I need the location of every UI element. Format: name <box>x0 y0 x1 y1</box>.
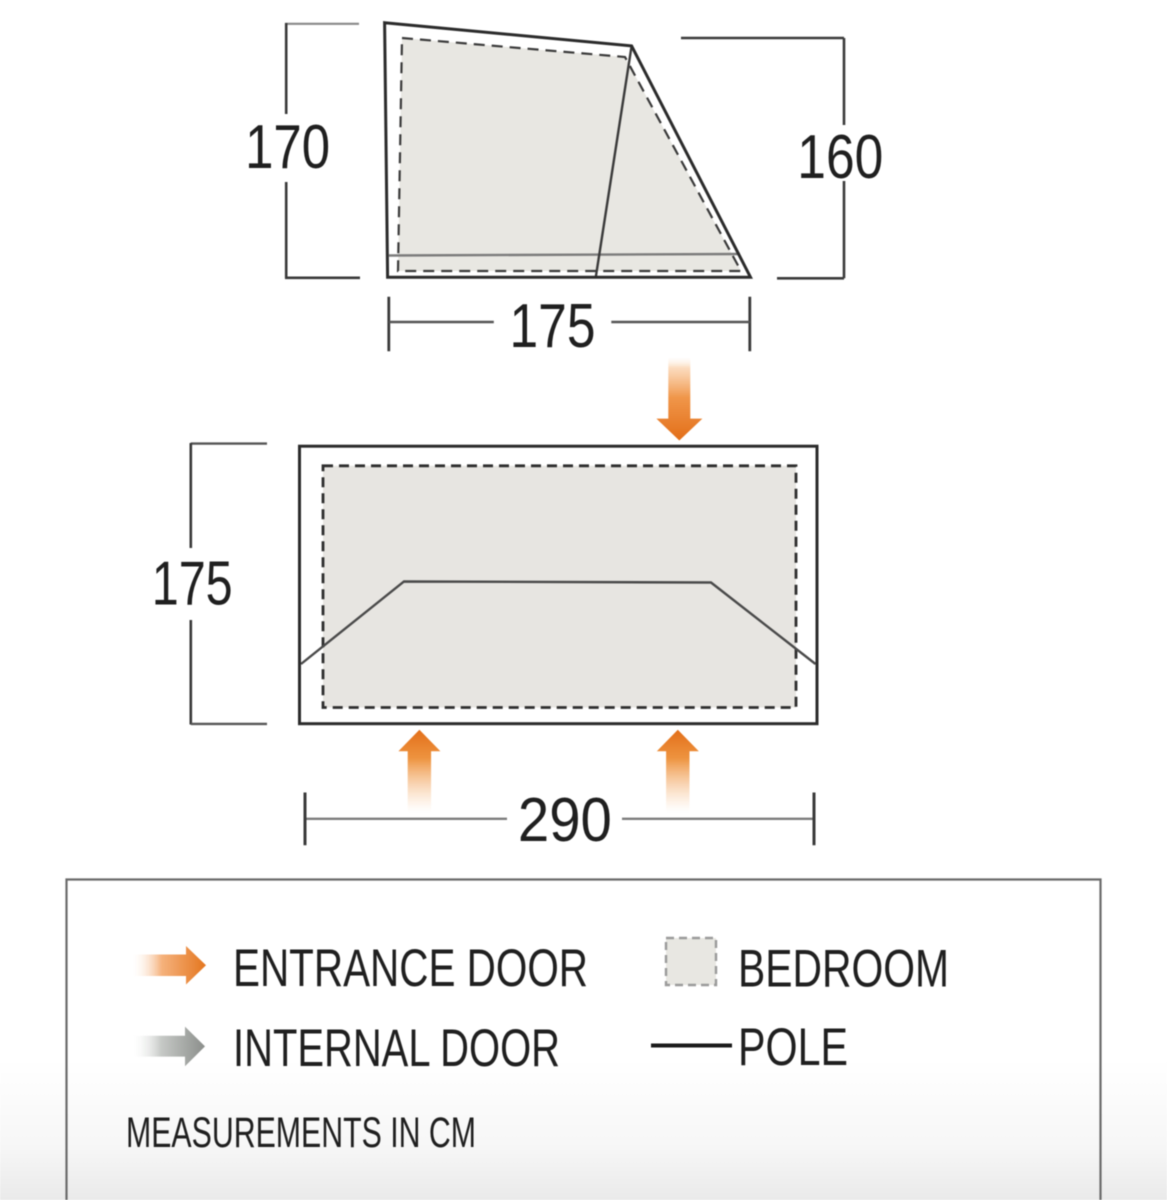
svg-text:MEASUREMENTS IN CM: MEASUREMENTS IN CM <box>126 1109 476 1157</box>
svg-text:160: 160 <box>797 123 883 192</box>
svg-text:BEDROOM: BEDROOM <box>738 940 949 999</box>
svg-text:ENTRANCE DOOR: ENTRANCE DOOR <box>233 939 588 998</box>
svg-text:POLE: POLE <box>738 1018 848 1077</box>
svg-text:170: 170 <box>245 113 330 182</box>
svg-text:175: 175 <box>152 549 233 618</box>
svg-text:INTERNAL DOOR: INTERNAL DOOR <box>233 1019 560 1078</box>
svg-text:290: 290 <box>518 786 612 855</box>
svg-text:175: 175 <box>510 292 596 361</box>
